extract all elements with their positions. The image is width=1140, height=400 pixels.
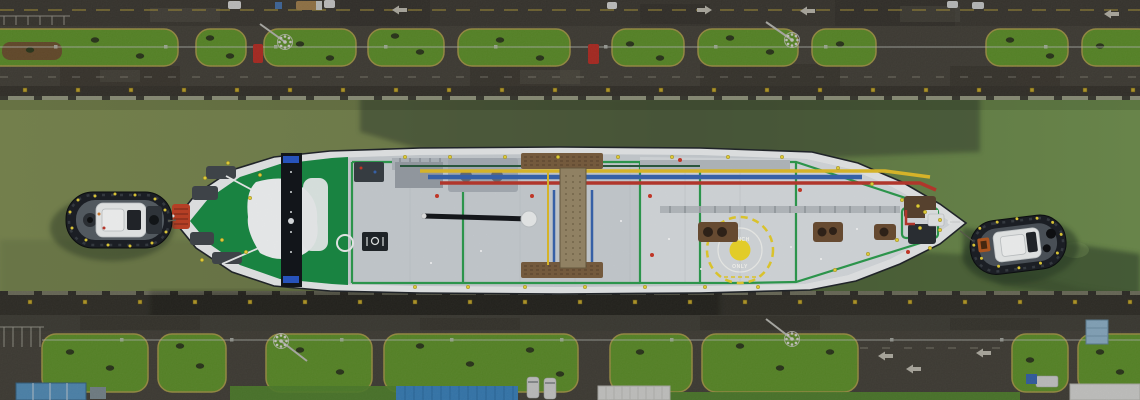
aerial-photo-canal-lock: WINCH ONLY xyxy=(0,0,1140,400)
photo-grain-overlay xyxy=(0,0,1140,400)
